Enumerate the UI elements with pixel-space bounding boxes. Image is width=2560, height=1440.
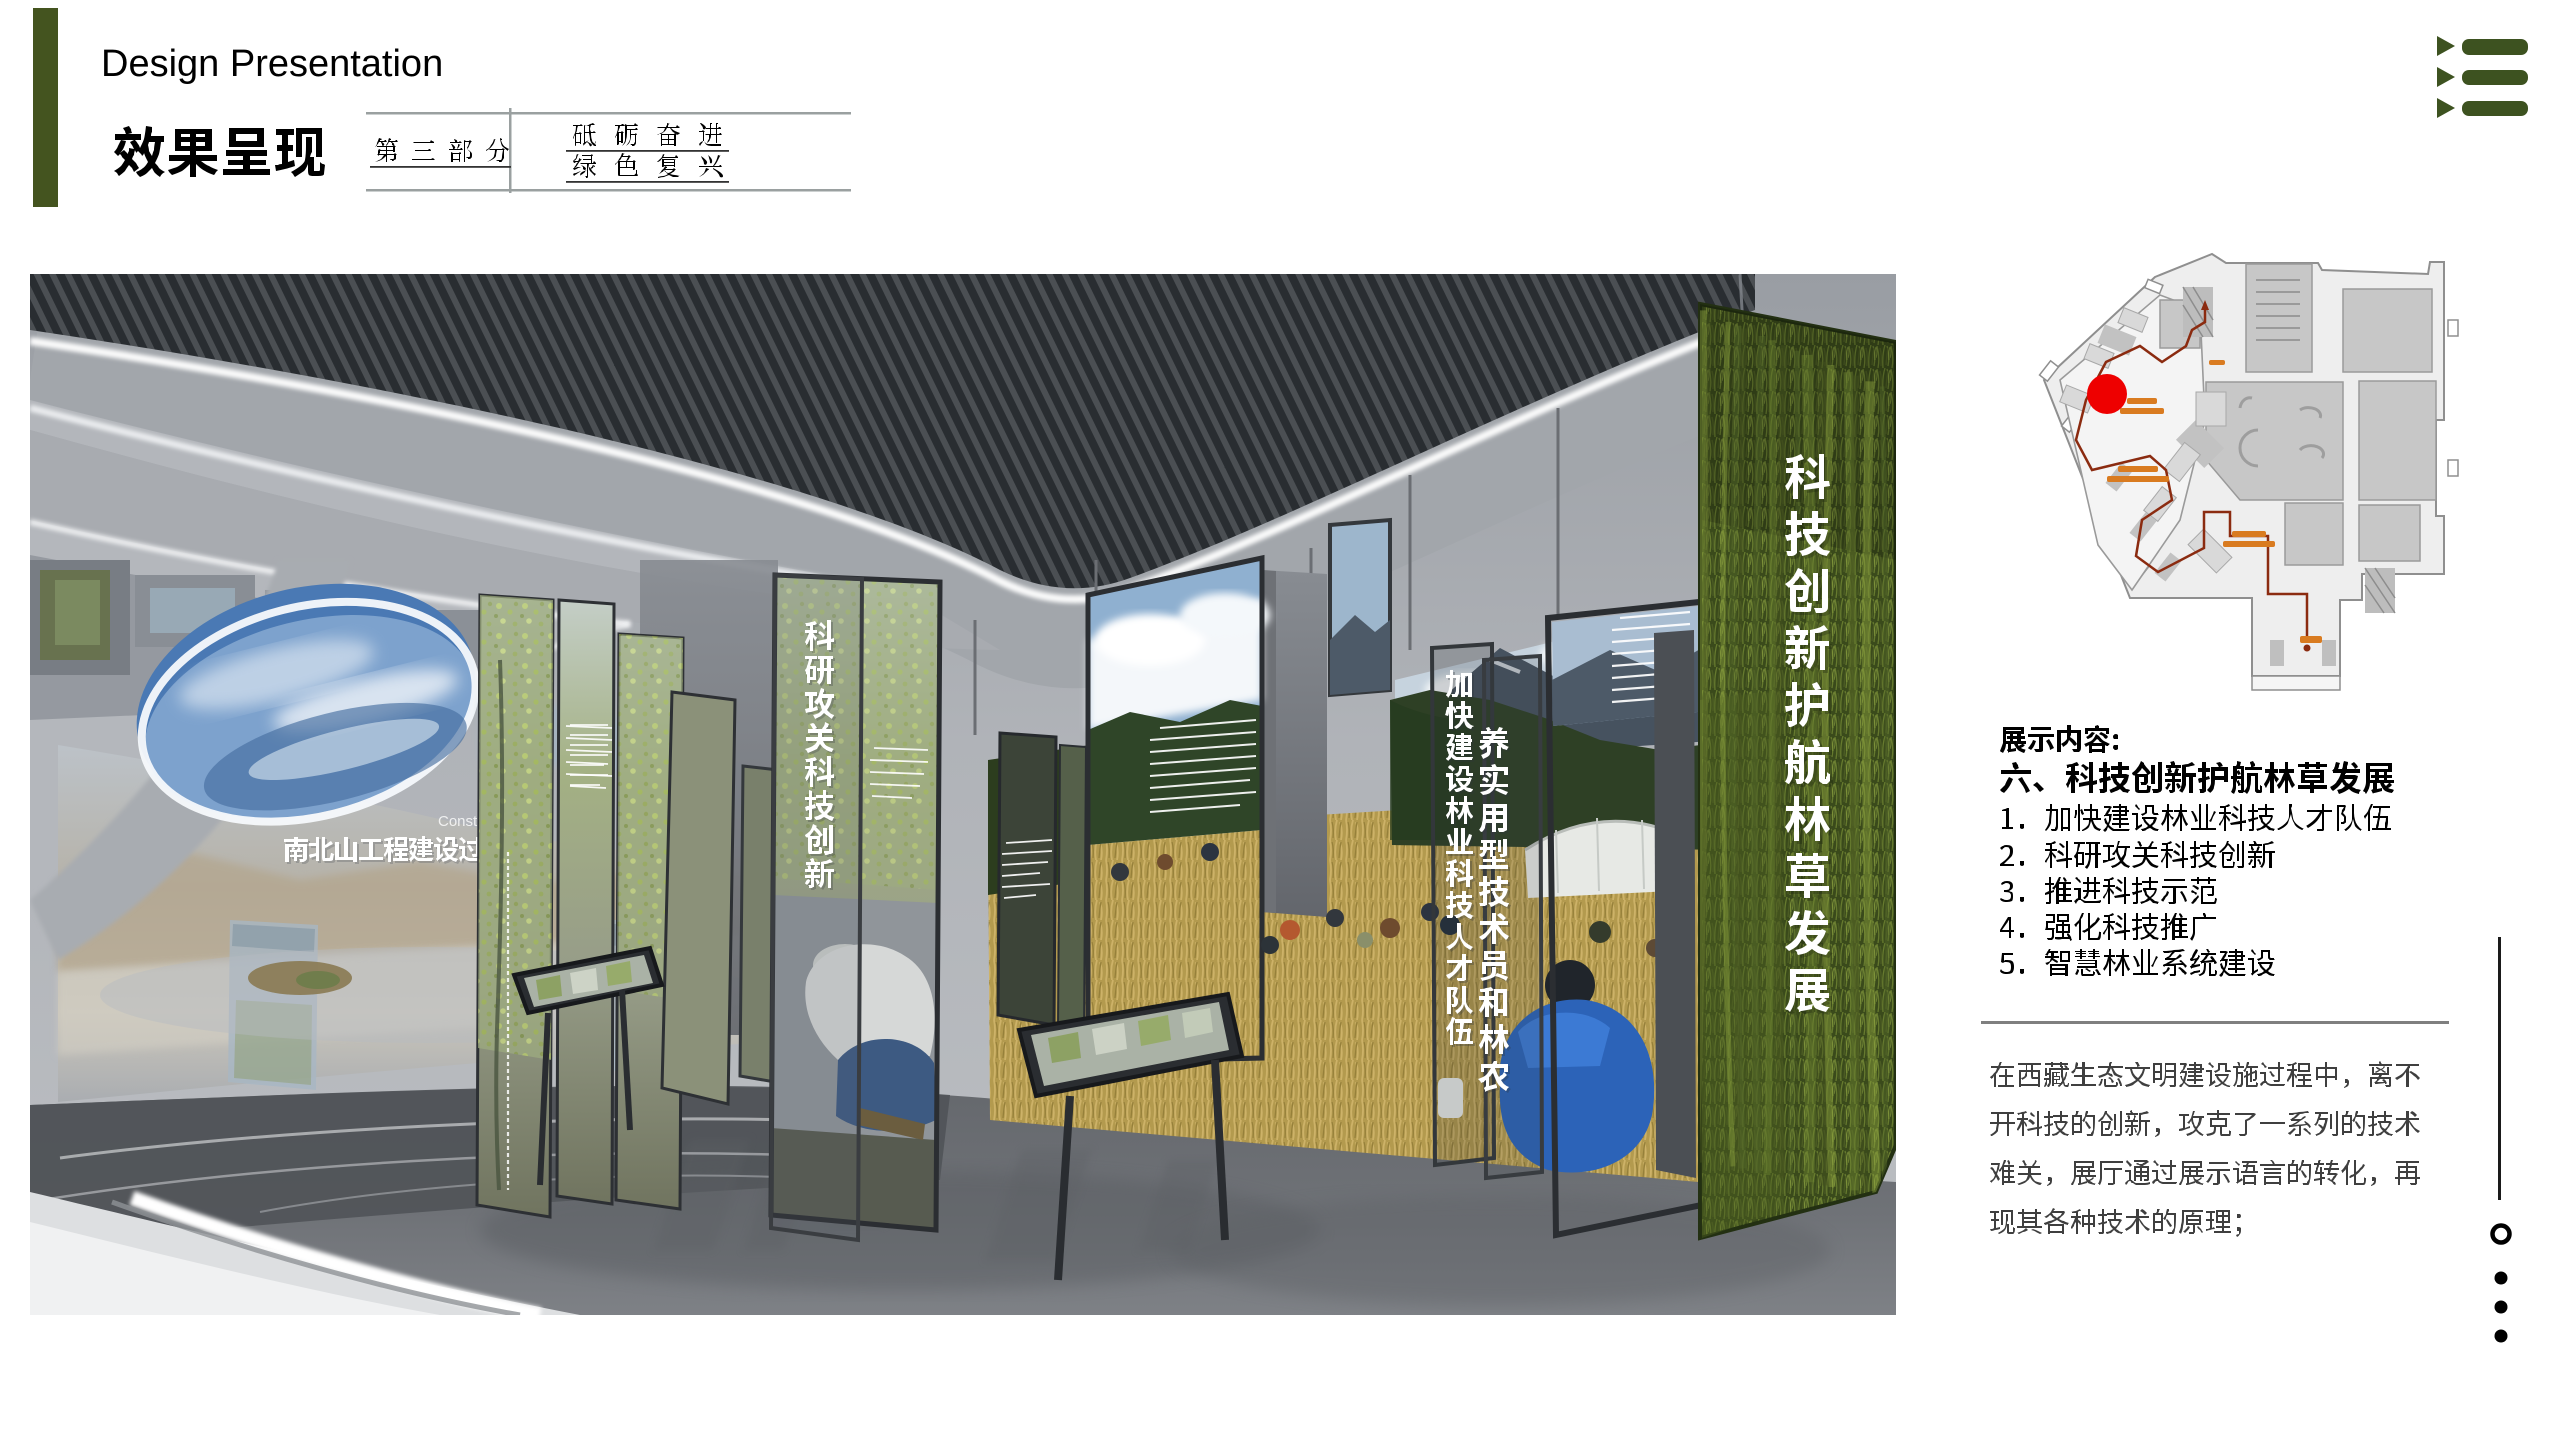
svg-text:Design Presentation: Design Presentation — [101, 43, 443, 85]
